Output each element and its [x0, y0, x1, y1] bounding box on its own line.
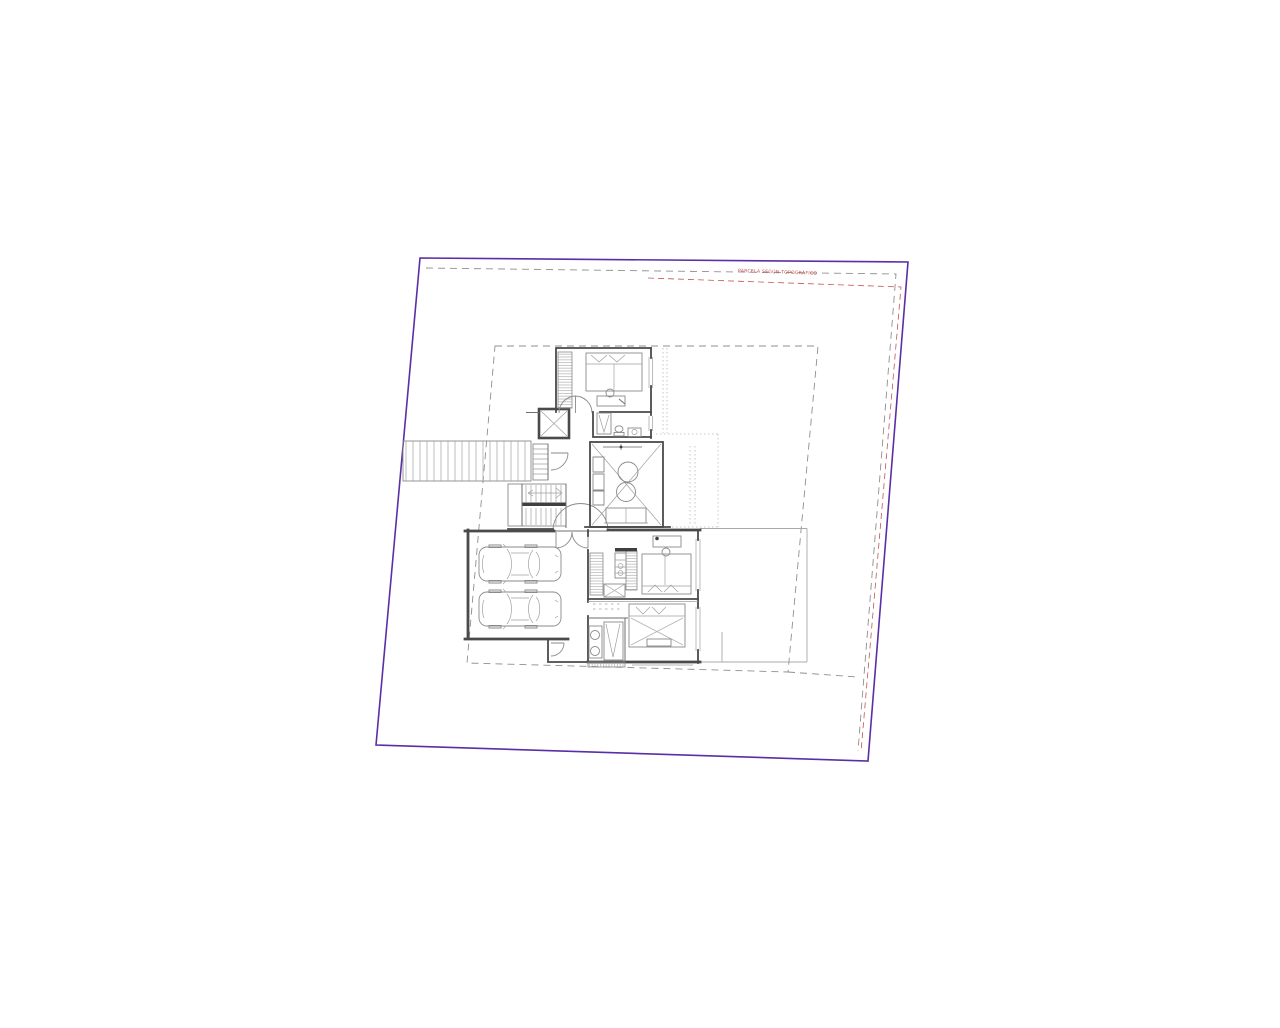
driveway-ramp	[403, 441, 531, 481]
garage	[465, 530, 588, 639]
roof-overhang-dotted	[656, 348, 718, 527]
wardrobe	[626, 551, 637, 590]
threshold-steps	[588, 662, 625, 667]
bed-upper	[586, 353, 642, 391]
garage-door-arcs	[556, 532, 588, 548]
shelves-void	[593, 457, 604, 505]
floor-plan-drawing: PARCELA SEGÚN TOPOGRÁFICO	[0, 0, 1280, 1024]
shower-upper	[597, 413, 611, 434]
lower-bedroom	[629, 604, 685, 647]
floor-plan-canvas: PARCELA SEGÚN TOPOGRÁFICO	[0, 0, 1280, 1024]
bedroom-block	[588, 530, 700, 667]
bed-lower	[629, 604, 685, 647]
shower-lower	[604, 622, 623, 660]
dot-grid	[593, 604, 620, 609]
void-circle	[618, 462, 638, 482]
service-door-arc	[551, 453, 568, 470]
upper-bathroom	[593, 412, 651, 437]
elevator-shaft	[526, 409, 569, 438]
terrace	[700, 529, 807, 663]
sofa	[604, 508, 648, 523]
toilet-upper	[614, 426, 624, 436]
bed-middle	[642, 554, 691, 594]
sink-upper	[628, 428, 641, 437]
survey-boundary-red: PARCELA SEGÚN TOPOGRÁFICO	[648, 267, 901, 752]
car	[479, 544, 561, 584]
middle-bedroom	[590, 536, 691, 609]
wardrobe	[590, 553, 603, 595]
site-boundary	[376, 258, 908, 761]
lower-bathroom	[588, 618, 628, 662]
storage-room	[548, 640, 588, 662]
double-height-void	[585, 442, 670, 527]
service-stair	[533, 444, 568, 480]
building-setback-dashed	[467, 346, 857, 677]
main-stair	[508, 484, 566, 528]
linen-box	[604, 584, 625, 597]
survey-boundary-label: PARCELA SEGÚN TOPOGRÁFICO	[738, 267, 818, 277]
upper-bedroom-suite	[556, 348, 653, 438]
desk-upper	[597, 389, 625, 406]
desk-middle	[653, 536, 681, 556]
double-sink	[589, 626, 602, 658]
lintel	[615, 548, 637, 552]
shelf-unit	[615, 553, 626, 578]
car	[479, 589, 561, 629]
offset-boundary-dashed	[426, 268, 896, 751]
